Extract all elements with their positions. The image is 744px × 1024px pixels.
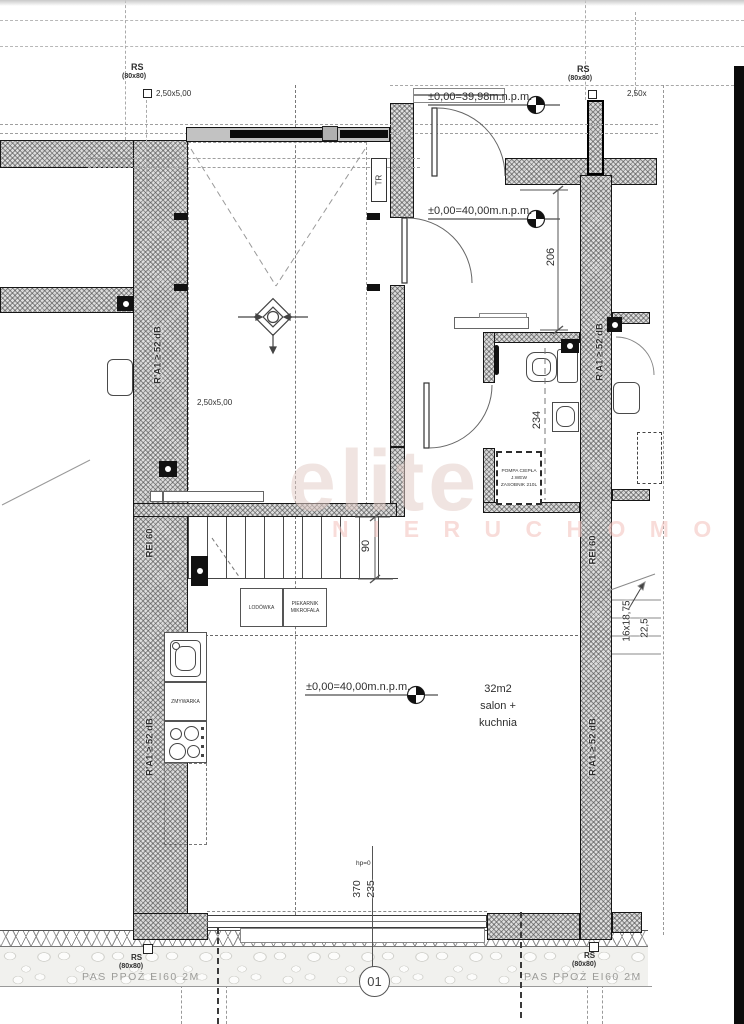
wall-corridor-lower (390, 285, 405, 447)
socket-box-1 (117, 296, 134, 311)
entry-shelf (479, 313, 527, 318)
dim-window-a: 370 (351, 880, 363, 898)
dim-hall-depth: 206 (545, 248, 557, 266)
wall-left-top-band (0, 140, 134, 168)
axis-bubble-01: 01 (359, 966, 390, 997)
garage-rail-bracket-1 (174, 213, 187, 220)
fire-left: REI 60 (145, 528, 156, 557)
page-edge-right (734, 66, 744, 1024)
fridge-box: LODÓWKA (240, 588, 283, 627)
axis-v-right2 (635, 12, 636, 95)
parking-right-label: 2,50x (627, 89, 647, 98)
garage-rail-bracket-4 (367, 284, 380, 291)
toilet-cistern (557, 349, 578, 383)
acoustic-right-upper: R'A1 ≥ 52 dB (595, 323, 606, 381)
burner-2 (184, 726, 199, 741)
dishwasher-cabinet: ZMYWARKA (164, 682, 207, 721)
acoustic-right-lower: R'A1 ≥ 52 dB (588, 718, 599, 776)
riser-square-top-left (143, 89, 152, 98)
fire-strip-left: PAS PPOŻ EI60 2M (82, 971, 200, 983)
wall-left-mid-band (0, 287, 134, 313)
bathroom-door (424, 383, 492, 448)
axis-v-left2 (146, 95, 147, 207)
toilet-inner (532, 358, 551, 376)
entrance-door (432, 108, 505, 176)
riser-bottom-left-size: (80x80) (119, 963, 143, 970)
wall-corridor-upper (390, 103, 414, 218)
garage-door-panel-right (340, 130, 388, 138)
garage-rail-bracket-3 (174, 284, 187, 291)
acoustic-left-upper: R'A1 ≥ 52 dB (153, 326, 164, 384)
boundary-line-a1 (0, 124, 658, 125)
parking-space-outline (188, 142, 367, 505)
parking-garage-label: 2,50x5,00 (197, 398, 232, 407)
heat-pump-label: POMPA CIEPŁA J.WEW ZASOBNIK 210L (501, 468, 537, 489)
joint-line-right (520, 912, 522, 1018)
riser-square-top-right (588, 90, 597, 99)
oven-label: PIEKARNIKMIKROFALA (291, 601, 320, 615)
terrace-window-sill (240, 928, 485, 943)
duct-label: TR (375, 175, 384, 186)
dim-bath-width: 234 (531, 411, 543, 429)
axis-b2 (226, 985, 227, 1024)
riser-bottom-left-label: RS (131, 953, 142, 962)
level-living-text: ±0,00=40,00m.n.p.m. (306, 681, 410, 693)
room-area: 32m2 (484, 683, 512, 695)
burner-3 (169, 743, 186, 760)
garage-rail-bracket-2 (367, 213, 380, 220)
wall-neighbor-right-b (612, 489, 650, 501)
riser-bottom-right-size: (80x80) (572, 961, 596, 968)
towel-radiator (494, 345, 499, 375)
garage-shelf-small (150, 491, 163, 502)
parking-left-label: 2,50x5,00 (156, 89, 191, 98)
axis-b4 (602, 985, 603, 1024)
socket-box-4 (561, 339, 579, 353)
window-lintel-dashed (207, 911, 487, 912)
neighbor-left-diagonal (2, 460, 90, 505)
socket-box-5 (607, 317, 622, 332)
heat-pump-box: POMPA CIEPŁA J.WEW ZASOBNIK 210L (496, 451, 542, 505)
dim-sill: hp=0 (356, 860, 371, 867)
garage-door-motor (322, 126, 338, 141)
ref-line-h3 (390, 85, 734, 86)
dim-neighbor-stairs-riser: 22,5 (640, 618, 651, 637)
interior-door (402, 218, 472, 283)
kitchen-counter-dashed (164, 763, 207, 845)
entry-bench (454, 317, 529, 329)
dim-neighbor-stairs: 16x18,75 (622, 600, 633, 641)
room-name-1: salon + (480, 700, 516, 712)
kitchen-sink-basin (175, 646, 196, 671)
axis-v-neighbor (663, 85, 664, 935)
axis-b1 (181, 985, 182, 1024)
cooktop-knobs (201, 727, 204, 759)
room-label: 32m2 salon + kuchnia (462, 681, 534, 732)
plot-bottom-line (0, 986, 652, 987)
socket-box-2 (159, 461, 177, 477)
riser-top-left-label: RS (131, 62, 144, 72)
bath-washbasin-bowl (556, 406, 575, 427)
riser-pillar-top (587, 100, 604, 175)
oven-box: PIEKARNIKMIKROFALA (283, 588, 327, 627)
axis-v-right1 (585, 0, 586, 100)
garage-shelf (163, 491, 264, 502)
wall-bottom-right-ext (612, 912, 642, 933)
riser-square-bottom-left (143, 944, 153, 954)
fire-strip-right: PAS PPOŻ EI60 2M (524, 971, 642, 983)
neighbor-left-washbasin (107, 359, 133, 396)
terrace-window-midline (207, 921, 487, 922)
ref-line-h1 (0, 20, 744, 21)
wall-bottom-left (133, 913, 208, 940)
garage-door-panel-left (230, 130, 322, 138)
fridge-label: LODÓWKA (249, 605, 275, 611)
joint-line-left (217, 928, 219, 1024)
level-entry-text: ±0,00=40,00m.n.p.m. (428, 205, 532, 217)
ref-line-h2 (0, 46, 744, 47)
kitchen-annex-dashed (165, 635, 578, 636)
room-name-2: kuchnia (479, 717, 517, 729)
axis-b3 (587, 985, 588, 1024)
axis-bubble-label: 01 (367, 974, 381, 989)
socket-box-3 (191, 556, 208, 586)
window-axis-line (372, 846, 373, 968)
kitchen-faucet (172, 642, 180, 650)
riser-top-right-size: (80x80) (568, 75, 592, 82)
burner-1 (170, 728, 182, 740)
wall-bottom-right (487, 913, 580, 940)
dishwasher-label: ZMYWARKA (171, 699, 200, 705)
neighbor-right-washbasin (613, 382, 640, 414)
riser-top-left-size: (80x80) (122, 73, 146, 80)
riser-top-right-label: RS (577, 64, 590, 74)
neighbor-stairs (605, 574, 661, 654)
dim-window-b: 235 (365, 880, 377, 898)
burner-4 (187, 745, 200, 758)
wall-garage-bottom (133, 503, 397, 517)
riser-bottom-right-label: RS (584, 951, 595, 960)
level-outside-text: ±0,00=39,98m.n.p.m. (428, 91, 532, 103)
neighbor-door-arc (616, 337, 654, 375)
acoustic-left-lower: R'A1 ≥ 52 dB (145, 718, 156, 776)
dim-stair-width: 90 (360, 540, 372, 552)
floor-plan-canvas: ZMYWARKA LODÓWKA PIEKARNIKMIKROFALA POMP… (0, 0, 744, 1024)
axis-v-left (125, 0, 126, 140)
scan-shadow-top (0, 0, 744, 6)
fire-right: REI 60 (588, 535, 599, 564)
neighbor-right-dashed-box (637, 432, 662, 484)
